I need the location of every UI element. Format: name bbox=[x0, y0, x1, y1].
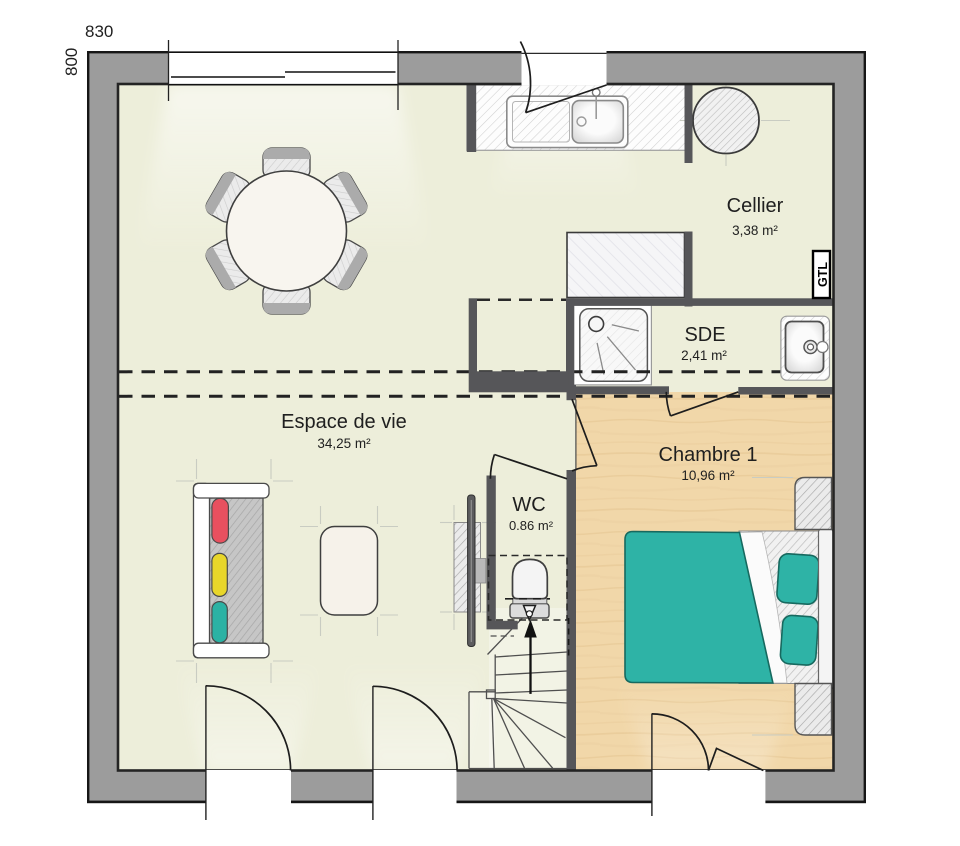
svg-text:10,96 m²: 10,96 m² bbox=[681, 468, 735, 483]
svg-text:Espace de vie: Espace de vie bbox=[281, 411, 407, 433]
svg-text:Cellier: Cellier bbox=[727, 195, 784, 217]
svg-text:GTL: GTL bbox=[816, 262, 830, 287]
svg-text:SDE: SDE bbox=[684, 324, 725, 346]
svg-text:WC: WC bbox=[512, 494, 545, 516]
svg-text:34,25 m²: 34,25 m² bbox=[317, 436, 371, 451]
svg-text:830: 830 bbox=[85, 22, 113, 41]
svg-text:0.86 m²: 0.86 m² bbox=[509, 518, 554, 533]
svg-text:2,41 m²: 2,41 m² bbox=[681, 348, 727, 363]
svg-text:3,38 m²: 3,38 m² bbox=[732, 223, 778, 238]
svg-text:Chambre 1: Chambre 1 bbox=[659, 444, 758, 466]
svg-text:800: 800 bbox=[62, 48, 81, 76]
